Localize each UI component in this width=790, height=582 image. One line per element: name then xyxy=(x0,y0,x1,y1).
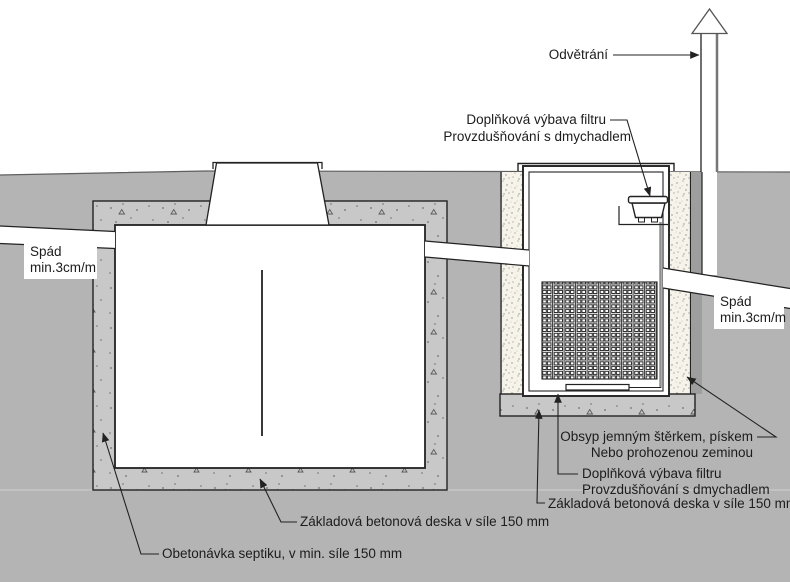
backfill-label-line2: Nebo prohozenou zeminou xyxy=(591,445,753,460)
aeration-diffuser-bar xyxy=(566,385,629,391)
backfill-label-line1: Obsyp jemným štěrkem, pískem xyxy=(560,429,753,444)
base-slab-septic-label: Základová betonová deska v síle 150 mm xyxy=(300,514,549,529)
vent-pipe-riser xyxy=(701,33,717,172)
filter-media-block xyxy=(542,282,657,379)
diagram-canvas: Odvětrání Doplňková výbava filtru Provzd… xyxy=(0,0,790,582)
septic-tank-body xyxy=(115,225,425,468)
filter-equipment-bottom-label-line2: Provzdušňování s dmychadlem xyxy=(582,482,770,497)
filter-equipment-top-label-line2: Provzdušňování s dmychadlem xyxy=(443,129,631,144)
slope-right-label-line2: min.3cm/m xyxy=(720,310,786,325)
blower-body xyxy=(632,203,665,218)
encasement-label: Obetonávka septiku, v min. síle 150 mm xyxy=(162,546,402,561)
vent-label: Odvětrání xyxy=(549,47,609,62)
vent-pipe-buried xyxy=(702,172,717,275)
diagram-page: Odvětrání Doplňková výbava filtru Provzd… xyxy=(0,0,790,582)
blower-lid xyxy=(629,197,668,204)
slope-left-label-line1: Spád xyxy=(30,244,62,259)
filter-foundation-slab xyxy=(500,394,695,416)
filter-equipment-bottom-label-line1: Doplňková výbava filtru xyxy=(582,466,722,481)
filter-equipment-top-label-line1: Doplňková výbava filtru xyxy=(466,112,606,127)
base-slab-filter-label: Základová betonová deska v síle 150 mm xyxy=(548,496,790,511)
slope-left-label-line2: min.3cm/m xyxy=(30,260,96,275)
septic-access-shaft xyxy=(206,163,329,225)
slope-right-label-line1: Spád xyxy=(720,294,752,309)
backfill-left-column xyxy=(502,172,523,394)
